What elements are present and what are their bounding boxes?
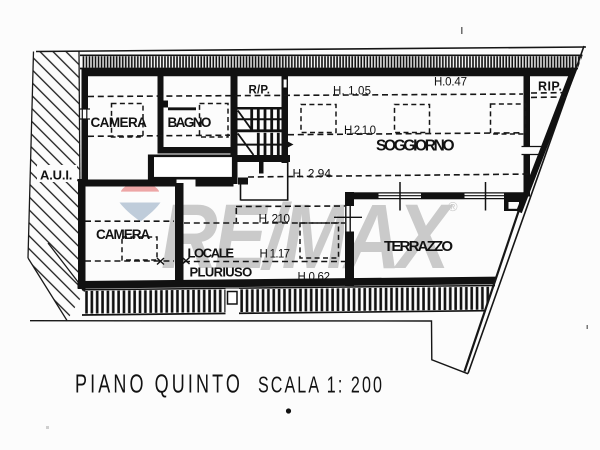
svg-text:R/P.: R/P. bbox=[249, 85, 271, 97]
svg-text:®: ® bbox=[448, 199, 458, 214]
svg-text:H. 1.05: H. 1.05 bbox=[333, 86, 371, 98]
svg-text:PIANO QUINTO: PIANO QUINTO bbox=[75, 369, 243, 399]
svg-text:H.2.1.0: H.2.1.0 bbox=[344, 125, 376, 137]
svg-text:H.0.47: H.0.47 bbox=[434, 77, 467, 89]
svg-text:SOGGIORNO: SOGGIORNO bbox=[376, 138, 456, 155]
svg-text:BAGNO: BAGNO bbox=[168, 115, 214, 130]
svg-text:PLURIUSO: PLURIUSO bbox=[190, 265, 254, 280]
svg-text:TERRAZZO: TERRAZZO bbox=[384, 238, 455, 255]
svg-text:CAMERA: CAMERA bbox=[91, 115, 150, 130]
svg-text:CAMERA: CAMERA bbox=[96, 227, 152, 242]
svg-text:H.0.62: H.0.62 bbox=[298, 272, 331, 284]
svg-text:RIP.: RIP. bbox=[538, 80, 563, 94]
svg-text:H. 2.94: H. 2.94 bbox=[293, 167, 332, 181]
svg-text:H 1.17: H 1.17 bbox=[260, 249, 291, 261]
svg-text:A.U.I.: A.U.I. bbox=[40, 168, 73, 183]
svg-text:SCALA 1: 200: SCALA 1: 200 bbox=[258, 372, 384, 398]
svg-text:H. 210: H. 210 bbox=[259, 212, 291, 226]
svg-text:LOCALE: LOCALE bbox=[188, 246, 236, 261]
